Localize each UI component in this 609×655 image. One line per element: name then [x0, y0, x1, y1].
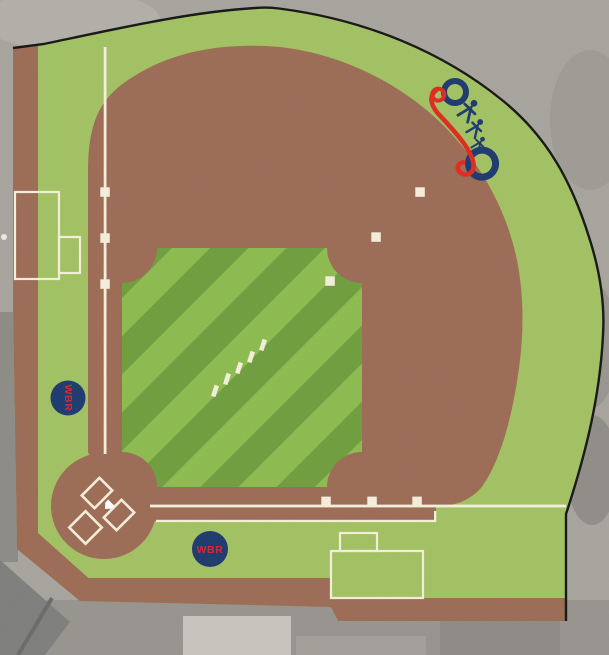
photo-grain-overlay	[0, 0, 609, 655]
field-plan-canvas: WBR WBR	[0, 0, 609, 655]
site-plan-svg: WBR WBR	[0, 0, 609, 655]
